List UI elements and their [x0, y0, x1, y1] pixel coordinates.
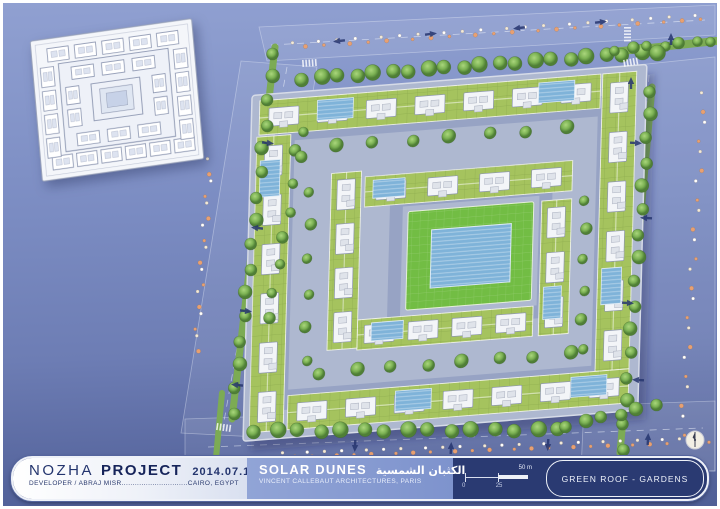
tree: [528, 52, 544, 68]
palm-tree: [707, 441, 710, 444]
palm-tree: [601, 440, 604, 443]
inset-unit-outline: [129, 34, 151, 50]
unit-room: [313, 406, 321, 413]
inset-unit-outline: [71, 64, 94, 79]
palm-tree: [317, 40, 320, 43]
palm-tree: [701, 110, 705, 114]
unit-room: [480, 96, 488, 103]
palm-tree: [442, 31, 445, 34]
unit-room: [351, 403, 359, 410]
unit-room: [501, 319, 509, 326]
unit-room: [577, 88, 585, 95]
unit-room: [285, 111, 293, 118]
palm-tree: [699, 150, 702, 153]
tree: [315, 425, 329, 439]
tree: [250, 192, 262, 204]
unit-room: [619, 152, 627, 159]
tree: [578, 48, 594, 64]
tree: [618, 444, 630, 456]
inset-unit-room: [180, 101, 184, 110]
pool-water: [601, 267, 622, 305]
pool-water: [259, 159, 280, 197]
inset-unit-outline: [101, 60, 124, 75]
sheet-title-panel: GREEN ROOF - GARDENS: [546, 460, 704, 497]
inset-unit-room: [185, 100, 189, 109]
inset-unit-room: [155, 79, 159, 87]
inset-unit-outline: [66, 86, 81, 105]
tree: [693, 37, 703, 47]
tree: [245, 238, 257, 250]
palm-tree: [554, 27, 558, 31]
crosswalk-stripe: [308, 59, 310, 66]
tree: [579, 414, 593, 428]
palm-tree: [699, 18, 702, 21]
tree: [620, 372, 632, 384]
palm-tree: [198, 261, 202, 265]
inset-unit: [66, 86, 81, 105]
palm-tree: [461, 30, 464, 33]
inset-unit-outline: [125, 144, 146, 160]
unit-room: [556, 387, 564, 394]
compass-pivot: [694, 439, 696, 441]
tree: [437, 60, 451, 74]
palm-tree: [441, 446, 444, 449]
unit-room: [444, 181, 452, 188]
inset-unit-room: [182, 124, 186, 133]
palm-tree: [687, 326, 690, 329]
unit-room: [438, 191, 446, 198]
inset-unit-room: [81, 135, 88, 141]
inset-unit-outline: [154, 96, 169, 115]
inset-unit: [68, 108, 83, 127]
unit-room: [542, 182, 550, 189]
inset-unit: [47, 46, 69, 62]
tree: [641, 158, 653, 170]
unit-room: [420, 101, 428, 108]
palm-tree: [694, 179, 697, 182]
inset-unit-room: [51, 51, 57, 58]
inset-unit: [156, 30, 178, 46]
tree: [644, 86, 656, 98]
unit-room: [269, 363, 277, 370]
inset-unit-room: [153, 145, 159, 152]
inset-unit-outline: [40, 66, 55, 87]
tree: [445, 424, 459, 438]
inset-unit: [107, 126, 130, 141]
inset-unit-room: [75, 69, 82, 75]
inset-unit-room: [150, 126, 157, 132]
palm-tree: [689, 286, 693, 290]
inset-key-plan: [30, 18, 205, 182]
tree: [270, 422, 286, 438]
title-bar: NOZHA PROJECT 2014.07.15 DEVELOPER / ABR…: [11, 456, 709, 501]
palm-tree: [631, 443, 634, 446]
inset-unit-outline: [42, 90, 57, 111]
palm-tree: [424, 446, 427, 449]
inset-unit-room: [133, 39, 139, 46]
palm-tree: [696, 198, 699, 201]
tree: [266, 69, 280, 83]
inset-unit-room: [56, 159, 62, 166]
crosswalk-stripe: [624, 33, 631, 35]
palm-tree: [505, 27, 508, 30]
scale-label-end: 50 m: [519, 465, 532, 471]
unit-room: [419, 335, 427, 342]
unit-room: [611, 236, 619, 243]
unit-room: [266, 298, 274, 305]
inset-unit-room: [112, 131, 119, 137]
unit-room: [308, 415, 316, 422]
palm-tree: [382, 448, 385, 451]
palm-tree: [354, 37, 357, 40]
inset-unit-room: [129, 148, 135, 155]
pool-water: [317, 98, 353, 121]
palm-tree: [201, 224, 204, 227]
developer-line: DEVELOPER / ABRAJ MISR..................…: [29, 480, 239, 487]
palm-tree: [281, 451, 284, 454]
tree: [358, 423, 372, 437]
tree: [640, 132, 652, 144]
tree: [610, 46, 620, 56]
tree: [261, 94, 273, 106]
tree: [560, 421, 572, 433]
unit-room: [264, 347, 272, 354]
crosswalk-stripe: [315, 59, 317, 66]
inset-unit-room: [157, 101, 161, 109]
inset-unit-outline: [132, 55, 155, 70]
palm-tree: [399, 447, 402, 450]
tree: [351, 69, 365, 83]
inset-unit-room: [105, 152, 111, 159]
inset-unit-room: [176, 54, 180, 63]
unit-room: [454, 404, 462, 411]
tree: [261, 120, 273, 132]
unit-room: [267, 412, 275, 419]
palm-tree: [394, 452, 397, 455]
pool-water: [570, 375, 606, 398]
inset-unit: [46, 137, 61, 158]
crosswalk-stripe: [624, 37, 631, 39]
palm-tree: [636, 21, 640, 25]
palm-tree: [688, 268, 691, 271]
palm-tree: [204, 246, 207, 249]
inset-unit-room: [43, 72, 47, 81]
scale-label-0: 0: [462, 483, 465, 489]
palm-tree: [453, 449, 457, 453]
unit-room: [616, 251, 624, 258]
palm-tree: [291, 41, 294, 44]
palm-tree: [693, 14, 696, 17]
crosswalk-stripe: [624, 30, 631, 32]
palm-tree: [500, 444, 503, 447]
scale-filled-bar: [498, 475, 529, 479]
tree: [628, 275, 640, 287]
palm-tree: [416, 33, 419, 36]
palm-tree: [571, 445, 575, 449]
inset-unit: [179, 118, 194, 139]
site-block: [243, 64, 655, 452]
tree: [625, 347, 637, 359]
inset-unit-outline: [107, 126, 130, 141]
inset-unit: [102, 38, 124, 54]
tree: [615, 409, 627, 421]
pool-water: [371, 320, 403, 341]
unit-room: [343, 332, 351, 339]
scheme-name: SOLAR DUNES: [259, 462, 367, 477]
inset-unit-room: [80, 155, 86, 162]
unit-room: [341, 228, 349, 235]
green-roof-building: [327, 171, 362, 350]
inset-unit-room: [112, 151, 118, 158]
unit-room: [424, 325, 432, 332]
unit-room: [517, 93, 525, 100]
inset-unit-room: [120, 130, 127, 136]
tree: [531, 421, 547, 437]
unit-room: [448, 395, 456, 402]
unit-room: [497, 392, 505, 399]
inset-unit-room: [59, 50, 65, 57]
tree: [651, 399, 663, 411]
inset-unit-outline: [77, 130, 100, 145]
unit-room: [490, 186, 498, 193]
tree: [488, 422, 502, 436]
inset-unit-room: [183, 76, 187, 85]
project-name: PROJECT: [101, 462, 182, 479]
inset-unit-outline: [76, 150, 97, 166]
palm-tree: [697, 209, 700, 212]
palm-tree: [322, 43, 325, 46]
pool-water: [538, 80, 574, 103]
palm-tree: [680, 18, 684, 22]
inset-unit: [150, 140, 171, 156]
palm-tree: [665, 442, 668, 445]
tree: [234, 336, 246, 348]
tree: [377, 425, 391, 439]
palm-tree: [303, 44, 307, 48]
tree: [295, 151, 307, 163]
inset-unit-room: [161, 101, 165, 109]
scale-bar: 0 25 50 m: [453, 458, 542, 499]
palm-tree: [700, 91, 703, 94]
unit-room: [268, 199, 276, 206]
unit-room: [613, 186, 621, 193]
palm-tree: [700, 168, 704, 172]
palm-tree: [411, 38, 414, 41]
unit-room: [557, 228, 565, 235]
palm-tree: [529, 446, 533, 450]
palm-tree: [306, 451, 309, 454]
palm-tree: [693, 238, 696, 241]
palm-tree: [542, 442, 545, 445]
inset-unit: [154, 96, 169, 115]
palm-tree: [487, 448, 491, 452]
inset-unit-room: [114, 63, 121, 69]
tree: [288, 179, 298, 189]
tree: [637, 203, 649, 215]
inset-unit: [74, 42, 96, 58]
inset-unit: [77, 130, 100, 145]
unit-room: [377, 113, 385, 120]
palm-tree: [694, 257, 697, 260]
palm-tree: [618, 23, 621, 26]
unit-room: [347, 200, 355, 207]
palm-tree: [200, 268, 203, 271]
inset-unit-room: [78, 47, 84, 54]
tree: [314, 69, 330, 85]
palm-tree: [577, 441, 580, 444]
tree: [401, 422, 417, 438]
palm-tree: [542, 24, 545, 27]
tree: [299, 127, 309, 137]
tree: [286, 208, 296, 218]
unit-room: [485, 178, 493, 185]
unit-room: [273, 215, 281, 222]
unit-room: [463, 331, 471, 338]
unit-room: [469, 97, 477, 104]
palm-tree: [692, 297, 695, 300]
inset-pool: [106, 90, 128, 107]
scheme-name-arabic: الكثبان الشمسية: [376, 464, 465, 477]
inset-unit: [132, 55, 155, 70]
project-name-outline: NOZHA: [29, 462, 94, 479]
inset-unit: [101, 60, 124, 75]
inset-unit-outline: [177, 95, 192, 116]
unit-room: [371, 105, 379, 112]
architect-line: VINCENT CALLEBAUT ARCHITECTURES, PARIS: [259, 478, 445, 485]
palm-tree: [429, 450, 432, 453]
inset-unit: [125, 144, 146, 160]
pool-water: [543, 286, 562, 320]
tree: [276, 231, 288, 243]
inset-unit-room: [187, 124, 191, 133]
unit-room: [496, 177, 504, 184]
tree: [644, 107, 658, 121]
palm-tree: [661, 438, 664, 441]
palm-tree: [589, 445, 592, 448]
tree: [629, 402, 643, 416]
crosswalk-stripe: [624, 40, 631, 42]
north-arrow: [683, 428, 707, 452]
crosswalk-stripe: [624, 27, 631, 29]
inset-unit-outline: [74, 42, 96, 58]
unit-room: [609, 335, 617, 342]
palm-tree: [203, 239, 206, 242]
inset-unit-room: [168, 34, 174, 41]
tree: [267, 288, 277, 298]
pool-water: [373, 178, 405, 199]
inset-unit-room: [52, 119, 56, 128]
palm-tree: [518, 443, 521, 446]
inset-unit: [40, 66, 55, 87]
inset-unit-room: [88, 154, 94, 161]
tree: [365, 65, 381, 81]
tree: [595, 411, 607, 423]
palm-tree: [206, 157, 209, 160]
compass-icon: [683, 428, 707, 452]
palm-tree: [458, 445, 461, 448]
scale-label-mid: 25: [496, 483, 503, 489]
palm-tree: [473, 33, 477, 37]
inset-unit-outline: [156, 30, 178, 46]
unit-room: [356, 412, 364, 419]
tree: [233, 357, 247, 371]
scheme-panel: SOLAR DUNES الكثبان الشمسية VINCENT CALL…: [247, 458, 453, 499]
inset-unit-room: [86, 46, 92, 53]
inset-unit: [177, 95, 192, 116]
inset-unit-outline: [44, 114, 59, 135]
inset-unit: [152, 74, 167, 93]
tree: [564, 52, 578, 66]
sheet-title: GREEN ROOF - GARDENS: [562, 474, 689, 484]
palm-tree: [380, 35, 383, 38]
unit-room: [280, 121, 288, 128]
palm-tree: [206, 216, 210, 220]
unit-room: [459, 395, 467, 402]
palm-tree: [202, 283, 205, 286]
inset-unit-room: [84, 68, 91, 74]
unit-room: [551, 257, 559, 264]
tree: [401, 65, 415, 79]
tree: [386, 64, 400, 78]
palm-tree: [679, 404, 683, 408]
tree: [420, 422, 434, 436]
inset-unit-room: [161, 35, 167, 42]
palm-tree: [688, 345, 692, 349]
tree: [249, 213, 263, 227]
palm-tree: [703, 121, 706, 124]
inset-unit-room: [144, 59, 151, 65]
inset-unit-outline: [173, 48, 188, 69]
palm-tree: [398, 34, 401, 37]
unit-room: [547, 173, 555, 180]
tree: [332, 422, 348, 438]
inset-unit-room: [68, 91, 72, 99]
palm-tree: [568, 23, 571, 26]
tree: [508, 57, 522, 71]
palm-tree: [559, 441, 562, 444]
unit-room: [620, 103, 628, 110]
crosswalk-stripe: [312, 59, 314, 66]
palm-tree: [510, 30, 514, 34]
unit-room: [545, 388, 553, 395]
scale-tick: [465, 473, 466, 482]
unit-room: [506, 328, 514, 335]
tree: [623, 322, 637, 336]
inset-unit-room: [49, 143, 53, 152]
unit-room: [615, 87, 623, 94]
unit-room: [263, 396, 271, 403]
unit-room: [617, 202, 625, 209]
palm-tree: [197, 305, 201, 309]
tree: [632, 229, 644, 241]
unit-room: [468, 322, 476, 329]
tree: [295, 73, 309, 87]
inset-unit-room: [70, 114, 74, 122]
palm-tree: [365, 448, 368, 451]
key-plan-diagram: [30, 18, 205, 182]
inset-unit-room: [142, 127, 149, 133]
inset-unit-outline: [68, 108, 83, 127]
tree: [290, 423, 304, 437]
unit-room: [556, 273, 564, 280]
palm-tree: [662, 20, 665, 23]
unit-room: [512, 318, 520, 325]
inset-unit-room: [178, 77, 182, 86]
tree: [238, 285, 252, 299]
unit-room: [474, 105, 482, 112]
unit-room: [552, 212, 560, 219]
unit-room: [502, 400, 510, 407]
